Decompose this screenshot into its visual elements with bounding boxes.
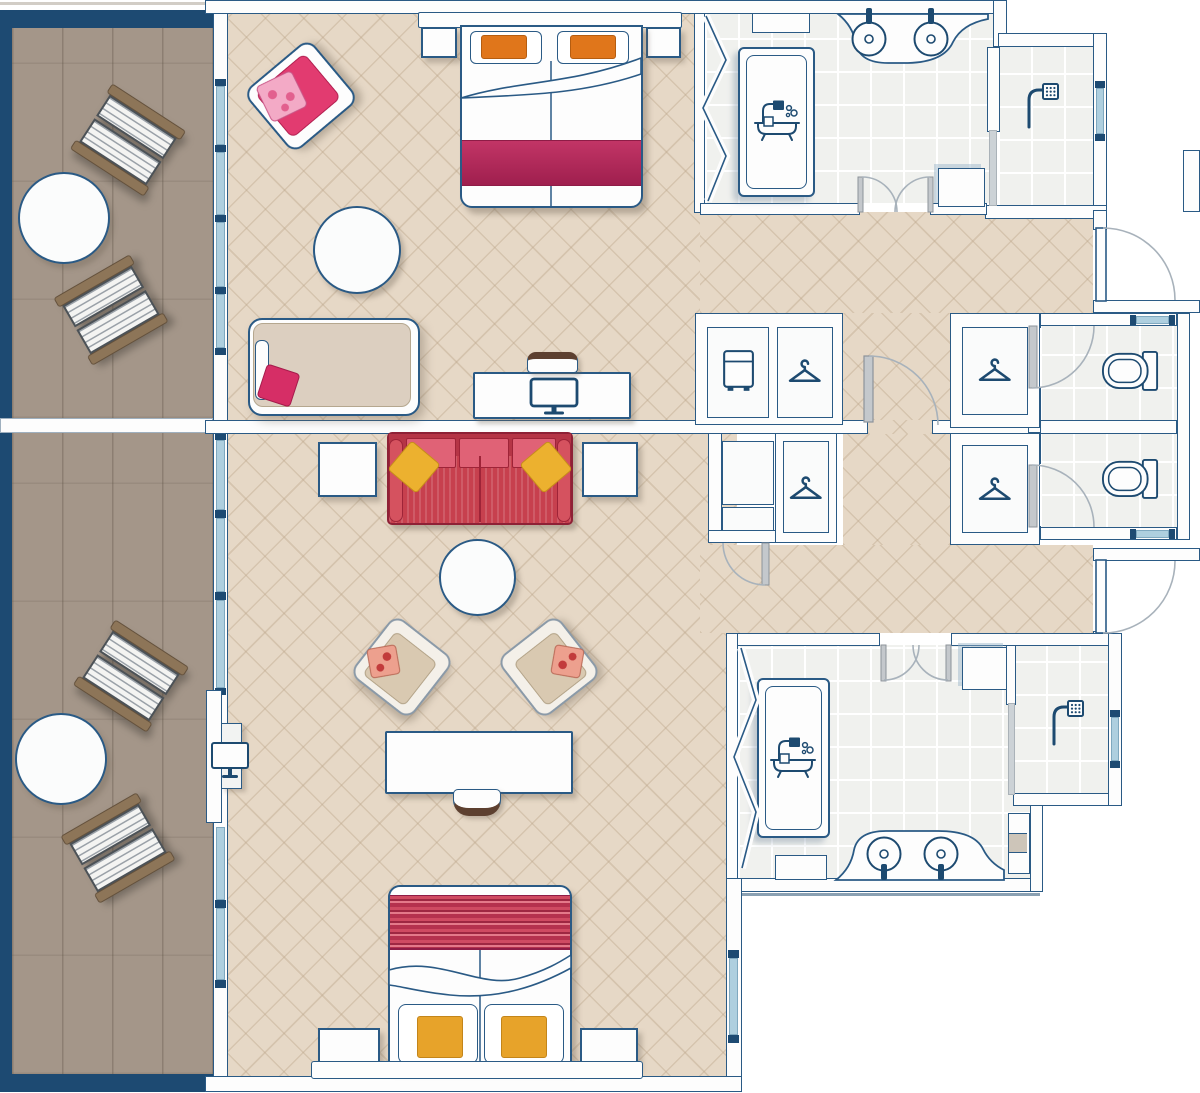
pillow-accent [417,1016,463,1058]
mullion [1095,81,1105,88]
pillow-accent [481,35,527,59]
entry-door-upper-leaf [1096,228,1106,301]
window-glass [216,908,225,980]
shower-lower-floor [1013,646,1108,795]
nightstand [421,27,457,58]
sofa-cushion [459,438,509,468]
closet-shelf-1 [722,441,774,505]
balcony-wall-top [0,10,213,28]
wc-lower-floor [1040,431,1177,529]
closet-lower-hanger-cell [783,441,829,533]
table [385,731,573,794]
mullion [1110,761,1120,768]
wall-bath-upper-left [694,13,705,213]
hall-lower-floor [700,545,1093,633]
bath-lower-column [1008,813,1030,874]
window-glass [216,518,225,592]
mullion [215,215,226,222]
wc-upper-window [1136,316,1169,324]
sofa-split [479,456,481,522]
mullion [215,980,226,988]
shower-upper-window [1096,88,1104,134]
corridor-outer-line [737,893,1040,896]
bath-upper-shelf [752,13,810,33]
wall-bath-lower-top-l [728,633,880,646]
desk-stool [527,352,578,373]
bed-center-line [479,950,481,1067]
mullion [215,592,226,600]
mullion [215,348,226,355]
wall-bath-lower-bottom [726,878,1043,892]
side-table [582,442,638,497]
entry-door-upper-arc [1103,228,1175,300]
window-glass [216,152,225,215]
tv-base [222,775,238,778]
column-cell [1009,833,1027,853]
entry-door-lower-arc [1103,561,1175,633]
bath-upper-cabinet [938,168,985,207]
mullion [215,79,226,86]
closet-upper-right-cell [962,327,1028,415]
window-glass [216,222,225,287]
shower-lower-window [1111,717,1119,761]
balcony-divider-wall [0,418,213,433]
shower-upper-floor [998,47,1093,207]
nightstand [646,27,681,58]
closet-hanger-cell [777,327,833,418]
bed-runner [462,140,641,186]
entry-door-lower-leaf [1096,560,1106,633]
closet-lower-right-cell [962,445,1028,533]
closet-lower-left-wall [708,433,722,543]
mullion [728,950,739,958]
window-glass [216,827,225,900]
mullion [215,145,226,152]
pillow [470,31,542,64]
mullion [215,433,226,440]
pillow-accent [570,35,616,59]
red-sofa [387,432,573,525]
mullion [1110,710,1120,717]
balcony-wall-left [0,10,12,1090]
window-glass [216,600,225,688]
bath-lower-shelf [775,855,827,880]
wall-bath-upper-bottom-l [700,203,860,215]
bathtub-inner [746,55,807,189]
balcony-wall-bottom [0,1074,213,1092]
round-coffee-table [439,539,516,616]
wc-lower-window [1136,530,1169,538]
wall-corridor-piece [1183,150,1200,212]
mullion [1095,134,1105,141]
hall-upper-floor [700,212,1093,313]
mullion [1169,529,1175,539]
closet-shelf-2 [722,507,774,531]
chair-pillow [366,644,401,679]
wall-shower-upper-stub [987,47,1000,132]
wall-entry-upper-stub [1093,210,1107,230]
mullion [215,287,226,294]
pillow-accent [501,1016,547,1058]
shower-upper-glass-partition [989,130,997,206]
stool [453,789,501,816]
wall-shower-lower-stub [1006,645,1016,705]
wall-entry-lower-h [1093,548,1200,561]
desk [473,372,631,419]
room-lower-window [729,958,738,1035]
shower-lower-glass-partition [1008,703,1015,795]
bed-lower [388,885,572,1068]
round-ottoman [313,206,401,294]
hall-upper-floor2 [843,313,950,428]
mullion [728,1035,739,1043]
door-gap-floor [868,420,932,434]
bed-runner-striped [390,895,570,950]
window-glass [216,86,225,145]
neighbor-line [0,2,208,5]
wc-upper-floor [1040,326,1177,422]
pillow [557,31,629,64]
bathtub-upper [738,47,815,197]
wall-bath-lower-right [1030,793,1043,892]
patio-table [18,172,110,264]
headboard-lower [311,1061,643,1079]
chair-pillow [550,644,585,679]
wall-entry-upper-h [1093,300,1200,313]
wall-shower-upper-bottom [985,205,1107,219]
bathtub-lower [757,678,830,838]
bathtub-inner [765,686,822,830]
mullion [215,510,226,518]
hall-lower-floor2 [843,433,950,545]
window-glass [216,294,225,348]
side-table [318,442,377,497]
floor-plan [0,0,1200,1093]
bed-upper [460,25,643,208]
wall-wc-right [1177,313,1190,540]
wall-bath-lower-top-r [951,633,1122,646]
pillow [398,1004,478,1064]
window-glass [216,440,225,510]
bath-lower-cabinet [962,647,1007,690]
wall-shower-lower-bottom [1013,793,1122,806]
mullion [215,900,226,908]
patio-table [15,713,107,805]
tv-icon [211,742,249,769]
mullion [1169,315,1175,325]
closet-minibar-cell [707,327,769,418]
wall-step-h [998,33,1107,47]
wall-bath-lower-left [726,633,738,883]
daybed [248,318,420,416]
pillow [484,1004,564,1064]
